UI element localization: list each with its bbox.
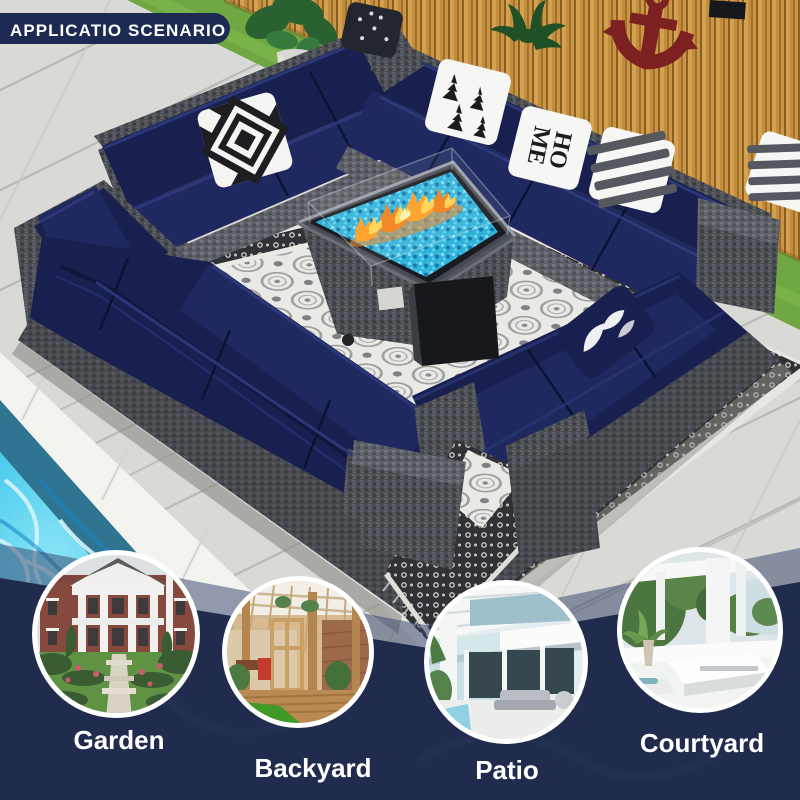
- svg-text:Backyard: Backyard: [254, 753, 371, 783]
- svg-text:Courtyard: Courtyard: [640, 728, 764, 758]
- svg-text:Patio: Patio: [475, 755, 539, 785]
- svg-text:Garden: Garden: [73, 725, 164, 755]
- svg-text:APPLICATIO SCENARIO: APPLICATIO SCENARIO: [10, 21, 226, 40]
